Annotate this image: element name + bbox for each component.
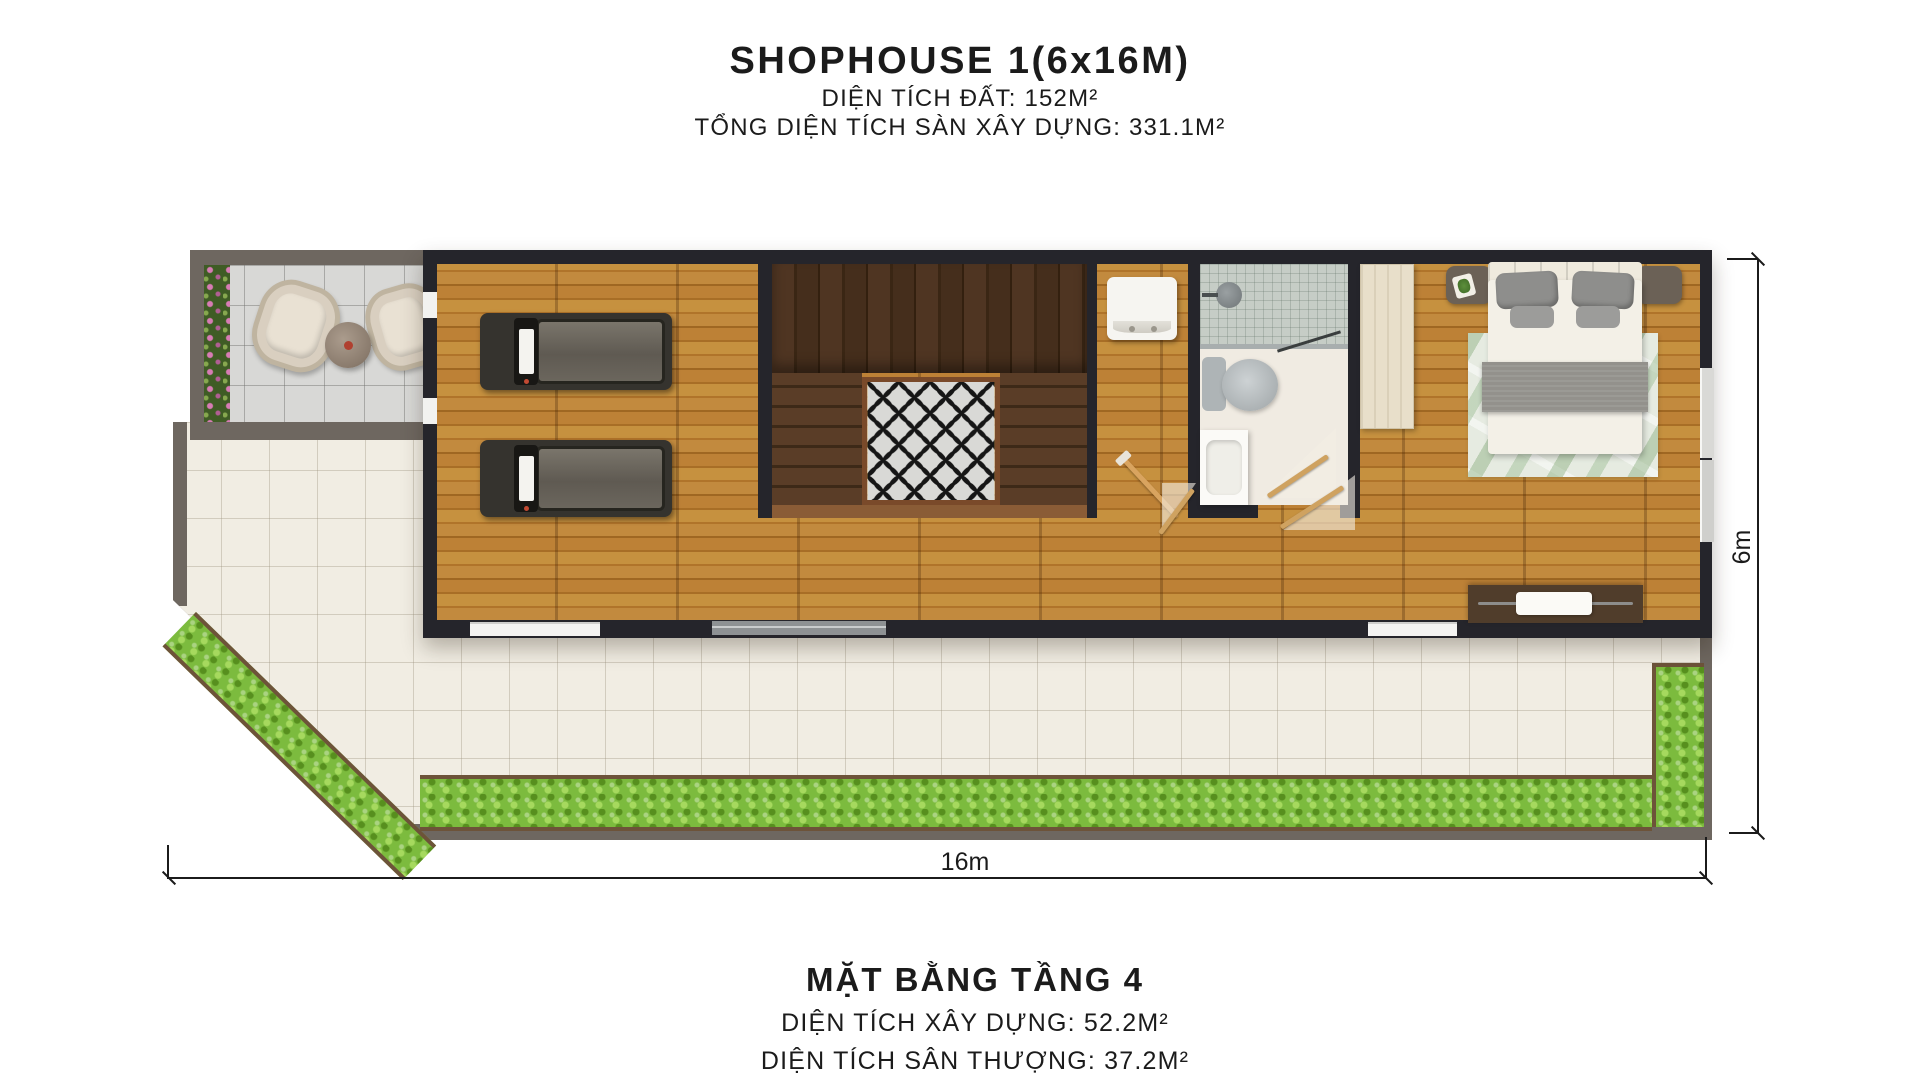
treadmill-1 [480,313,672,390]
coffee-table [325,322,371,368]
bathroom-wall-bottom-a [1188,505,1258,518]
bedroom [1412,264,1700,620]
shower-arm [1202,293,1218,297]
height-dimension-label: 6m [1729,517,1755,577]
double-bed [1488,262,1642,454]
bed-runner [1482,362,1648,412]
treadmill-button [524,379,529,384]
shower-glass [1200,344,1348,349]
dimension-riser-right [1705,837,1707,879]
washer-panel [1113,321,1171,333]
dimension-line-width [168,877,1706,879]
width-dimension-label: 16m [925,848,1005,877]
stair-flight-right [1000,373,1087,505]
cup-icon [344,341,353,350]
pillow-small [1576,306,1620,328]
plant-icon [1451,273,1476,299]
floor-plan: 16m 6m [0,0,1920,1080]
pillow [1495,270,1559,309]
balcony-door-opening [423,292,437,318]
hedge-bottom [420,775,1652,831]
plant-leaves [1456,278,1471,295]
bathroom-door-swing [1262,428,1336,498]
pillow-small [1510,306,1554,328]
stair-flight-left [772,373,862,505]
bathroom-wall-left [1188,250,1200,518]
treadmill-button [524,506,529,511]
sink-basin [1206,440,1242,495]
balcony [190,250,435,440]
floor-title: MẶT BẰNG TẦNG 4 [30,961,1920,999]
wardrobe [1360,264,1414,429]
hedge-right [1652,663,1704,827]
shower-head-icon [1216,282,1242,308]
stair-landing-patterned-tile [862,377,1000,505]
stair-wall-right [1087,250,1097,518]
laptop-icon [1516,592,1592,615]
balcony-wall-left [190,250,204,440]
treadmill-screen [519,456,534,501]
building [423,250,1712,638]
treadmill-screen [519,329,534,374]
washer-knob [1151,326,1157,332]
floor-plan-page: SHOPHOUSE 1(6x16M) DIỆN TÍCH ĐẤT: 152M² … [0,0,1920,1080]
balcony-wall-top [190,250,435,265]
balcony-wall-bottom [190,422,435,440]
treadmill-belt [536,319,665,384]
nightstand-left [1446,266,1492,304]
dimension-line-height [1757,259,1759,833]
chair-cushion [261,289,331,363]
built-area-label: DIỆN TÍCH XÂY DỰNG: 52.2M² [30,1009,1920,1038]
bathroom [1200,264,1348,505]
stair-upper-flight [772,264,1087,373]
stair-wall-left [758,250,772,518]
nightstand-right [1636,266,1682,304]
washer-knob [1129,326,1135,332]
right-wall-window-2 [1700,460,1714,542]
dimension-cap-top [1727,258,1758,260]
treadmill-2 [480,440,672,517]
desk-console [1468,585,1643,623]
right-wall-window-1 [1700,368,1714,458]
toilet-bowl [1222,359,1278,411]
washing-machine [1107,277,1177,340]
pillow [1571,270,1635,309]
bottom-window-1 [470,622,600,636]
stair-bottom-trim [772,505,1087,518]
bottom-window-2 [1368,622,1457,636]
bottom-glass-door [712,621,886,635]
sink-vanity [1200,430,1248,505]
treadmill-belt [536,446,665,511]
terrace-area-label: DIỆN TÍCH SÂN THƯỢNG: 37.2M² [30,1047,1920,1076]
flower-planter [204,265,230,422]
dimension-cap-bottom [1729,832,1758,834]
balcony-window-opening [423,398,437,424]
terrace-wall-left [173,422,187,606]
